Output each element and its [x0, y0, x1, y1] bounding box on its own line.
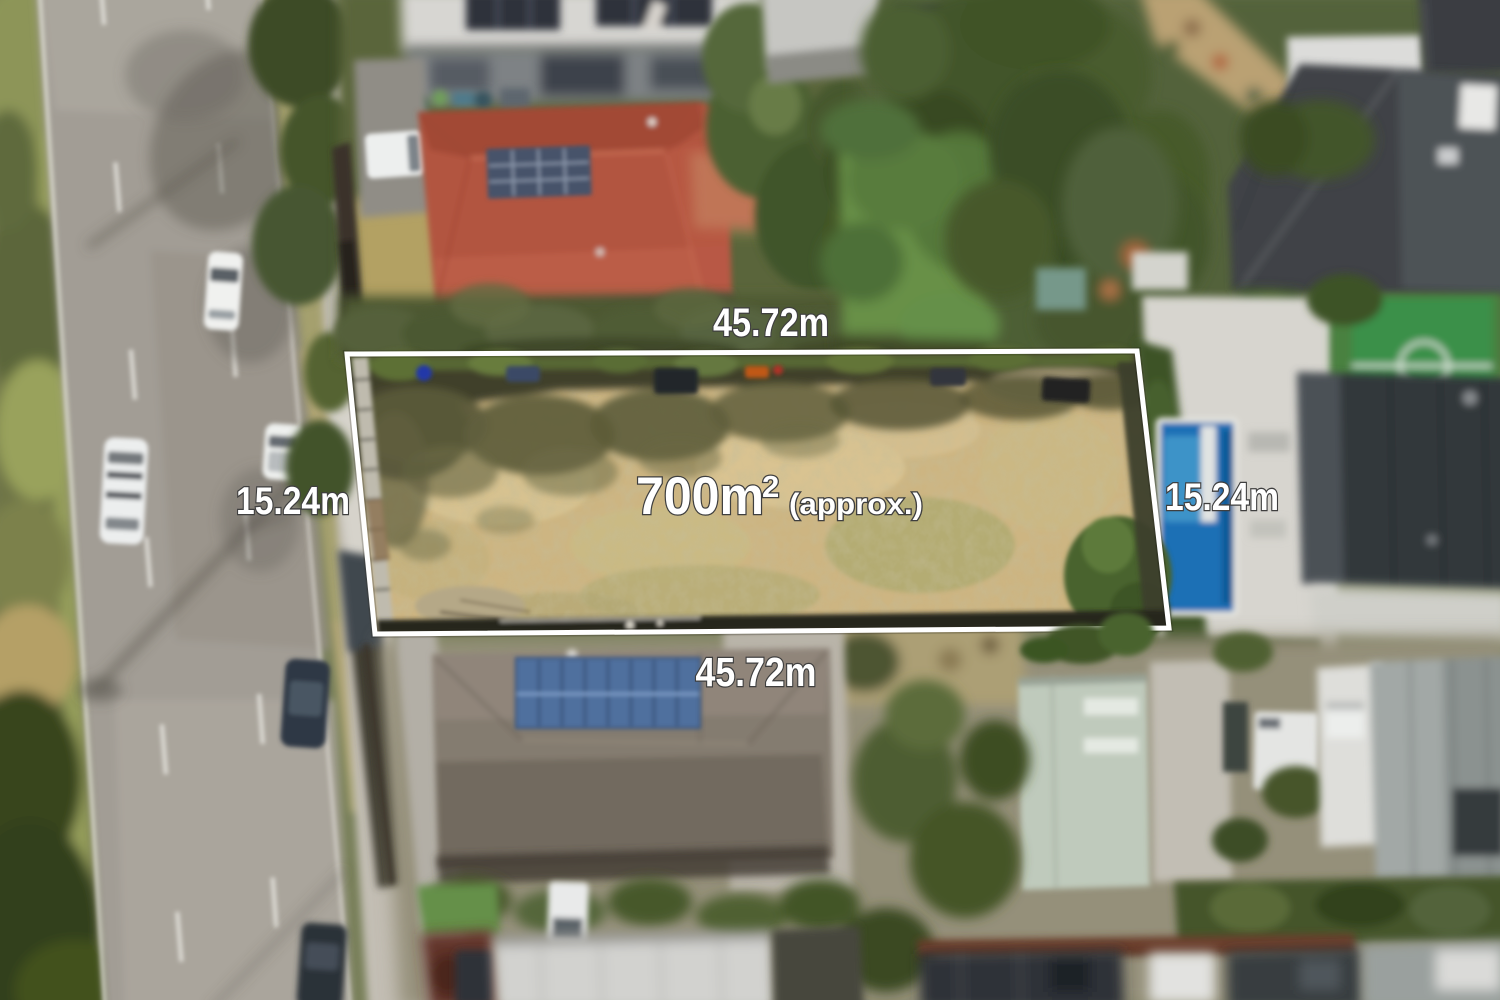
svg-text:45.72m: 45.72m	[713, 301, 829, 345]
svg-text:15.24m: 15.24m	[1165, 476, 1279, 519]
svg-text:700m: 700m	[636, 467, 764, 526]
svg-text:2: 2	[762, 469, 779, 504]
svg-text:45.72m: 45.72m	[696, 649, 817, 695]
svg-text:15.24m: 15.24m	[236, 480, 350, 523]
svg-text:(approx.): (approx.)	[789, 488, 923, 521]
